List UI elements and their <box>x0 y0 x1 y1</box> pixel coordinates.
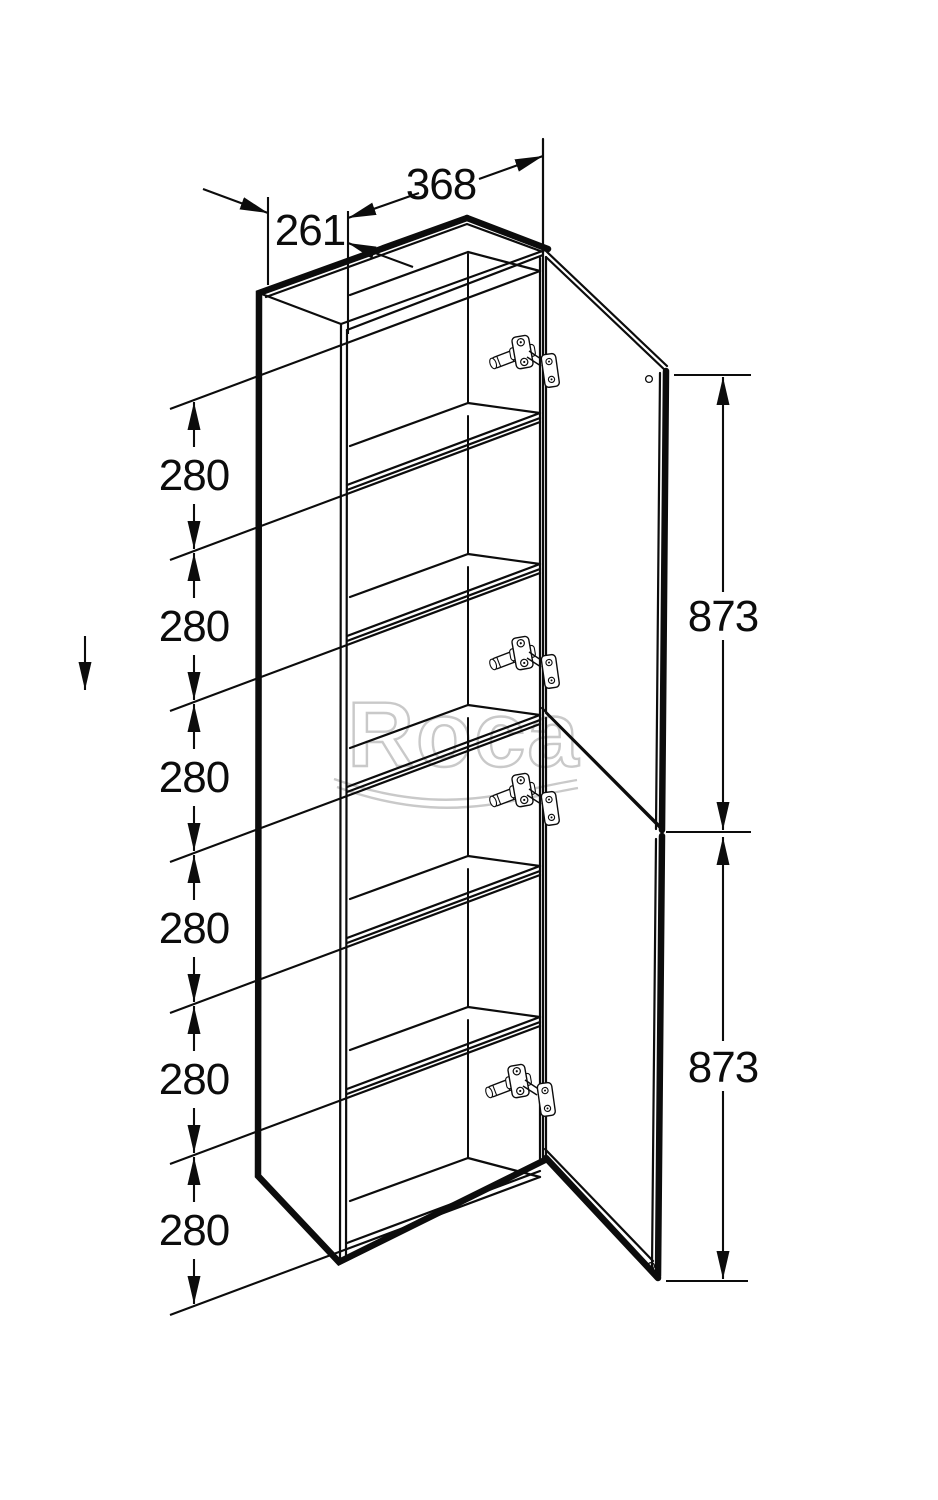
width-depth-dimensions <box>203 156 543 334</box>
shelf-4 <box>347 856 540 947</box>
cabinet-ceiling <box>347 252 540 343</box>
dim-label-upper-door-height: 873 <box>688 592 758 641</box>
dim-label-width: 368 <box>406 160 476 209</box>
cabinet-right-edge <box>540 139 543 1162</box>
dim-label-280: 280 <box>159 753 229 802</box>
cabinet-floor <box>347 1158 540 1249</box>
dim-label-280: 280 <box>159 602 229 651</box>
lower-door <box>545 713 663 1278</box>
dim-label-lower-door-height: 873 <box>688 1043 758 1092</box>
dim-label-280: 280 <box>159 451 229 500</box>
shelf-1 <box>347 403 540 494</box>
hinge-icon <box>488 635 559 689</box>
dim-label-280: 280 <box>159 1206 229 1255</box>
cabinet-left-wall <box>340 324 347 1261</box>
drawing-canvas: Roca <box>0 0 938 1500</box>
hinge-icon <box>488 334 559 388</box>
cabinet-technical-drawing: Roca <box>0 0 938 1500</box>
shelf-2 <box>347 554 540 645</box>
registered-mark-icon <box>646 376 653 383</box>
door-height-dimensions <box>666 375 751 1281</box>
dim-label-280: 280 <box>159 904 229 953</box>
dim-label-depth: 261 <box>275 206 345 255</box>
dim-label-280: 280 <box>159 1055 229 1104</box>
